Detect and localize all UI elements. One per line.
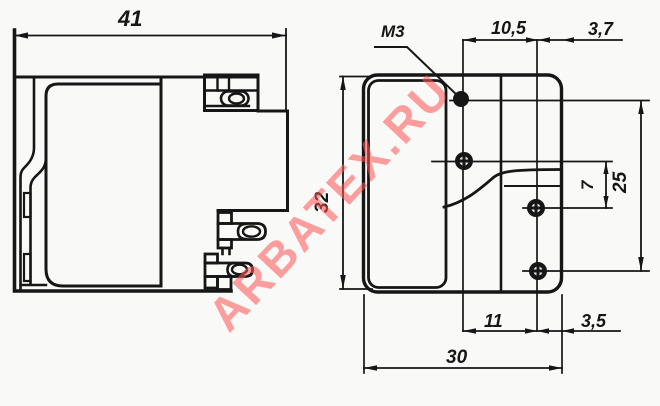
svg-text:10,5: 10,5 (491, 18, 527, 38)
svg-text:M3: M3 (381, 22, 405, 41)
svg-text:11: 11 (484, 311, 503, 331)
svg-text:30: 30 (446, 347, 468, 368)
svg-text:25: 25 (610, 171, 631, 194)
svg-text:3,7: 3,7 (588, 19, 614, 39)
svg-text:3,5: 3,5 (581, 311, 607, 331)
svg-text:41: 41 (117, 6, 142, 31)
svg-text:7: 7 (578, 179, 597, 190)
